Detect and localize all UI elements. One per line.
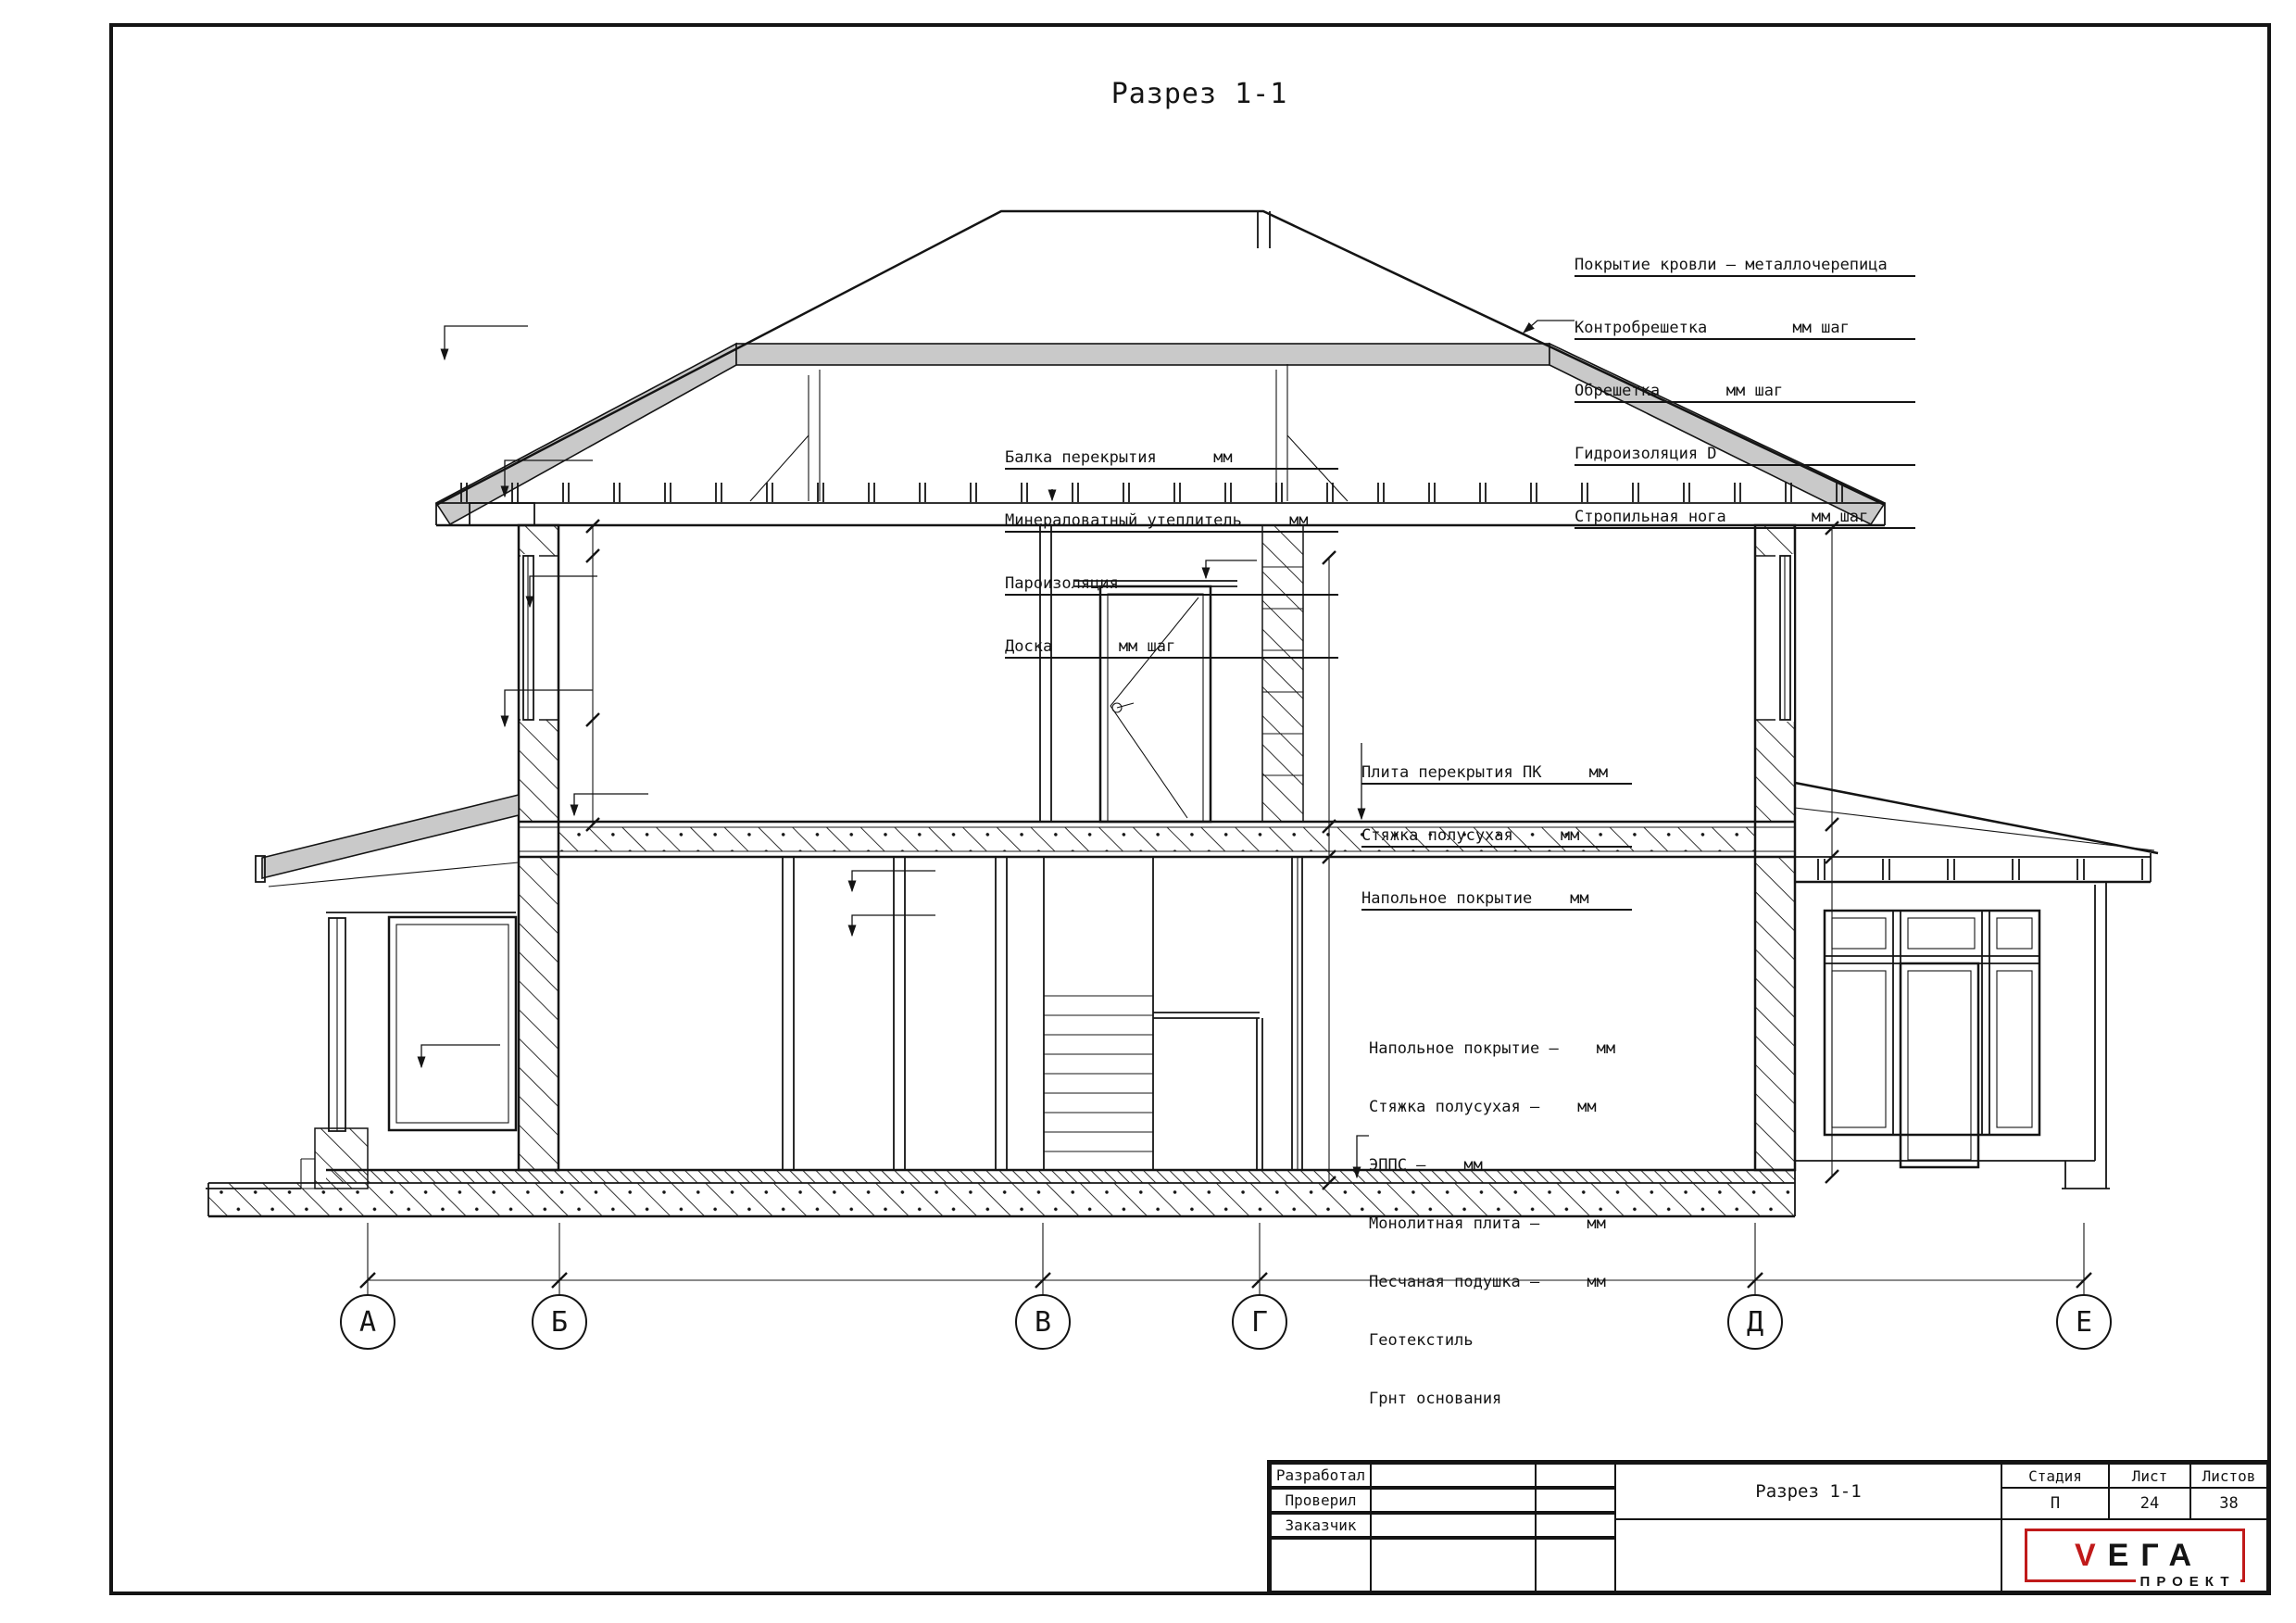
titleblock-sheets-label: Листов	[2189, 1463, 2268, 1489]
titleblock-name-cell	[1370, 1513, 1537, 1538]
titleblock-sign-cell	[1535, 1513, 1616, 1538]
vega-logo-rest: ЕГА	[2108, 1538, 2203, 1573]
axis-bubble-v: В	[1015, 1294, 1071, 1350]
titleblock-label-customer: Заказчик	[1270, 1513, 1372, 1538]
titleblock-sign-cell	[1535, 1538, 1616, 1592]
ceiling-note: Балка перекрытия мм Минераловатный утепл…	[1005, 407, 1338, 699]
title-block: Разработал Проверил Заказчик Разрез 1-1 …	[1267, 1460, 2271, 1595]
note-line: Балка перекрытия мм	[1005, 447, 1338, 470]
note-line: Напольное покрытие мм	[1361, 888, 1632, 911]
titleblock-sheet-label: Лист	[2108, 1463, 2191, 1489]
titleblock-stage-label: Стадия	[2001, 1463, 2110, 1489]
axis-bubble-e: Е	[2056, 1294, 2112, 1350]
drawing-sheet: Разрез 1-1 Покрытие кровли – металлочере…	[0, 0, 2296, 1623]
axis-bubble-b: Б	[532, 1294, 587, 1350]
vega-logo-v: V	[2075, 1538, 2108, 1573]
titleblock-label-checked: Проверил	[1270, 1488, 1372, 1513]
note-line: Плита перекрытия ПК мм	[1361, 762, 1632, 785]
note-line: Грнт основания	[1369, 1390, 1647, 1409]
titleblock-drawing-title: Разрез 1-1	[1614, 1463, 2002, 1520]
titleblock-name-cell	[1370, 1538, 1537, 1592]
note-line: Песчаная подушка – мм	[1369, 1273, 1647, 1292]
note-line: Пароизоляция	[1005, 573, 1338, 596]
note-line: Стяжка полусухая мм	[1361, 825, 1632, 848]
titleblock-name-cell	[1370, 1488, 1537, 1513]
vega-logo-text: VЕГА	[2065, 1538, 2203, 1574]
vega-logo-subtitle: ПРОЕКТ	[2136, 1574, 2240, 1590]
titleblock-sheet-value: 24	[2108, 1487, 2191, 1520]
note-line: Обрешетка мм шаг	[1575, 381, 1915, 403]
note-line: Напольное покрытие – мм	[1369, 1039, 1647, 1059]
first-floor-partitions-stairs	[783, 857, 1302, 1170]
axis-bubble-a: А	[340, 1294, 395, 1350]
porch	[256, 795, 519, 1131]
titleblock-label-developed: Разработал	[1270, 1463, 1372, 1488]
titleblock-sheets-value: 38	[2189, 1487, 2268, 1520]
slab-note: Плита перекрытия ПК мм Стяжка полусухая …	[1361, 722, 1632, 951]
floor-note: Напольное покрытие – мм Стяжка полусухая…	[1369, 1000, 1647, 1448]
titleblock-label-empty	[1270, 1538, 1372, 1592]
axis-bubble-d: Д	[1727, 1294, 1783, 1350]
axis-bubble-g: Г	[1232, 1294, 1287, 1350]
roof-note: Покрытие кровли – металлочерепица Контро…	[1575, 214, 1915, 570]
note-line: Гидроизоляция D	[1575, 444, 1915, 466]
note-line: Покрытие кровли – металлочерепица	[1575, 255, 1915, 277]
note-line: Монолитная плита – мм	[1369, 1214, 1647, 1234]
annex	[1795, 783, 2158, 1189]
note-line: Геотекстиль	[1369, 1331, 1647, 1351]
note-line: Минераловатный утеплитель мм	[1005, 510, 1338, 533]
titleblock-logo-cell: VЕГА ПРОЕКТ	[2001, 1518, 2268, 1592]
titleblock-sign-cell	[1535, 1488, 1616, 1513]
titleblock-sign-cell	[1535, 1463, 1616, 1488]
page-title: Разрез 1-1	[1051, 78, 1348, 110]
section-drawing	[0, 0, 2296, 1623]
titleblock-empty-cell	[1614, 1518, 2002, 1592]
note-line: Контробрешетка мм шаг	[1575, 318, 1915, 340]
titleblock-name-cell	[1370, 1463, 1537, 1488]
titleblock-stage-value: П	[2001, 1487, 2110, 1520]
note-line: Доска мм шаг	[1005, 636, 1338, 659]
note-line: ЭППС – мм	[1369, 1156, 1647, 1176]
axis-grid	[360, 1223, 2091, 1294]
note-line: Стяжка полусухая – мм	[1369, 1098, 1647, 1117]
note-line: Стропильная нога мм шаг	[1575, 507, 1915, 529]
vega-logo: VЕГА ПРОЕКТ	[2025, 1529, 2245, 1582]
